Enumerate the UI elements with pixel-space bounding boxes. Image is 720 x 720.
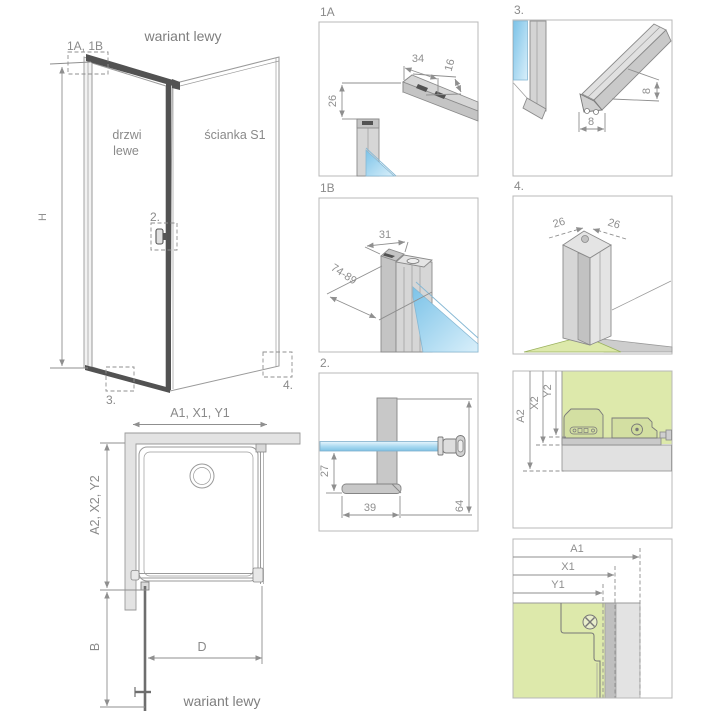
detail-box-3: 3. 8 8 [513, 3, 672, 176]
dim-d-label: D [197, 640, 206, 654]
dim-x2-label: X2 [529, 396, 541, 409]
callout-4: 4. [263, 352, 293, 392]
height-dimension: H [37, 62, 91, 368]
plan-dim-top: A1, X1, Y1 [133, 406, 267, 425]
dim-y2-label: Y2 [542, 384, 554, 397]
plan-wall [125, 433, 300, 610]
detail-box-1b: 1B 31 74-89 [319, 181, 478, 352]
plan-door-open [135, 582, 151, 711]
dim-a2x2y2-label: A2, X2, Y2 [88, 475, 102, 535]
variant-title-bottom: wariant lewy [182, 693, 260, 709]
dim-39-label: 39 [364, 502, 376, 514]
installation-diagram-page: wariant lewy [0, 0, 720, 720]
door-label-line1: drzwi [112, 128, 141, 142]
detail-box-2: 2. 27 39 64 [319, 356, 478, 531]
dim-b-label: B [88, 643, 102, 651]
dim-8w-label: 8 [588, 116, 594, 128]
tray-band [562, 445, 672, 471]
dim-a2-label: A2 [515, 409, 527, 422]
detail-box-a1x1y1: A1 X1 Y1 [513, 539, 672, 698]
shower-tray [139, 447, 258, 581]
door-handle [156, 229, 167, 244]
dim-a1-label: A1 [570, 543, 583, 555]
dim-a1x1y1-label: A1, X1, Y1 [170, 406, 230, 420]
isometric-overview: wariant lewy [37, 28, 293, 407]
detail-1a-label: 1A [320, 5, 335, 19]
plan-door-closed [131, 568, 263, 582]
dim-26-label: 26 [327, 95, 339, 107]
dim-31-label: 31 [379, 229, 391, 241]
dim-8h-label: 8 [641, 88, 653, 94]
wall-label: ścianka S1 [204, 128, 265, 142]
ref-1ab-label: 1A, 1B [67, 39, 103, 53]
detail-box-4: 4. 26 26 [513, 179, 672, 354]
dim-64-label: 64 [454, 500, 466, 512]
diagram-svg: wariant lewy [0, 0, 720, 720]
plan-view: A1, X1, Y1 [88, 406, 300, 711]
wall-profile-isometric [563, 231, 611, 345]
detail-box-1a: 1A 26 34 16 [319, 5, 478, 176]
detail-3-label: 3. [514, 3, 524, 17]
detail-2-label: 2. [320, 356, 330, 370]
detail-box-a2x2y2: A2 X2 Y2 [513, 371, 672, 528]
dim-27-label: 27 [319, 465, 331, 477]
door-label-line2: lewe [113, 144, 139, 158]
ref-4-label: 4. [283, 378, 293, 392]
dim-y1-label: Y1 [551, 579, 564, 591]
dim-34-label: 34 [412, 53, 424, 65]
ref-3-label: 3. [106, 393, 116, 407]
variant-title-top: wariant lewy [143, 28, 221, 44]
ref-2-label: 2. [150, 210, 160, 224]
dim-x1-label: X1 [561, 561, 574, 573]
detail-1b-label: 1B [320, 181, 335, 195]
detail-4-label: 4. [514, 179, 524, 193]
plan-dim-d: D [148, 586, 262, 664]
side-wall-panel [170, 57, 279, 391]
dim-h-label: H [37, 213, 49, 221]
corner-plan-drawing [513, 603, 640, 698]
